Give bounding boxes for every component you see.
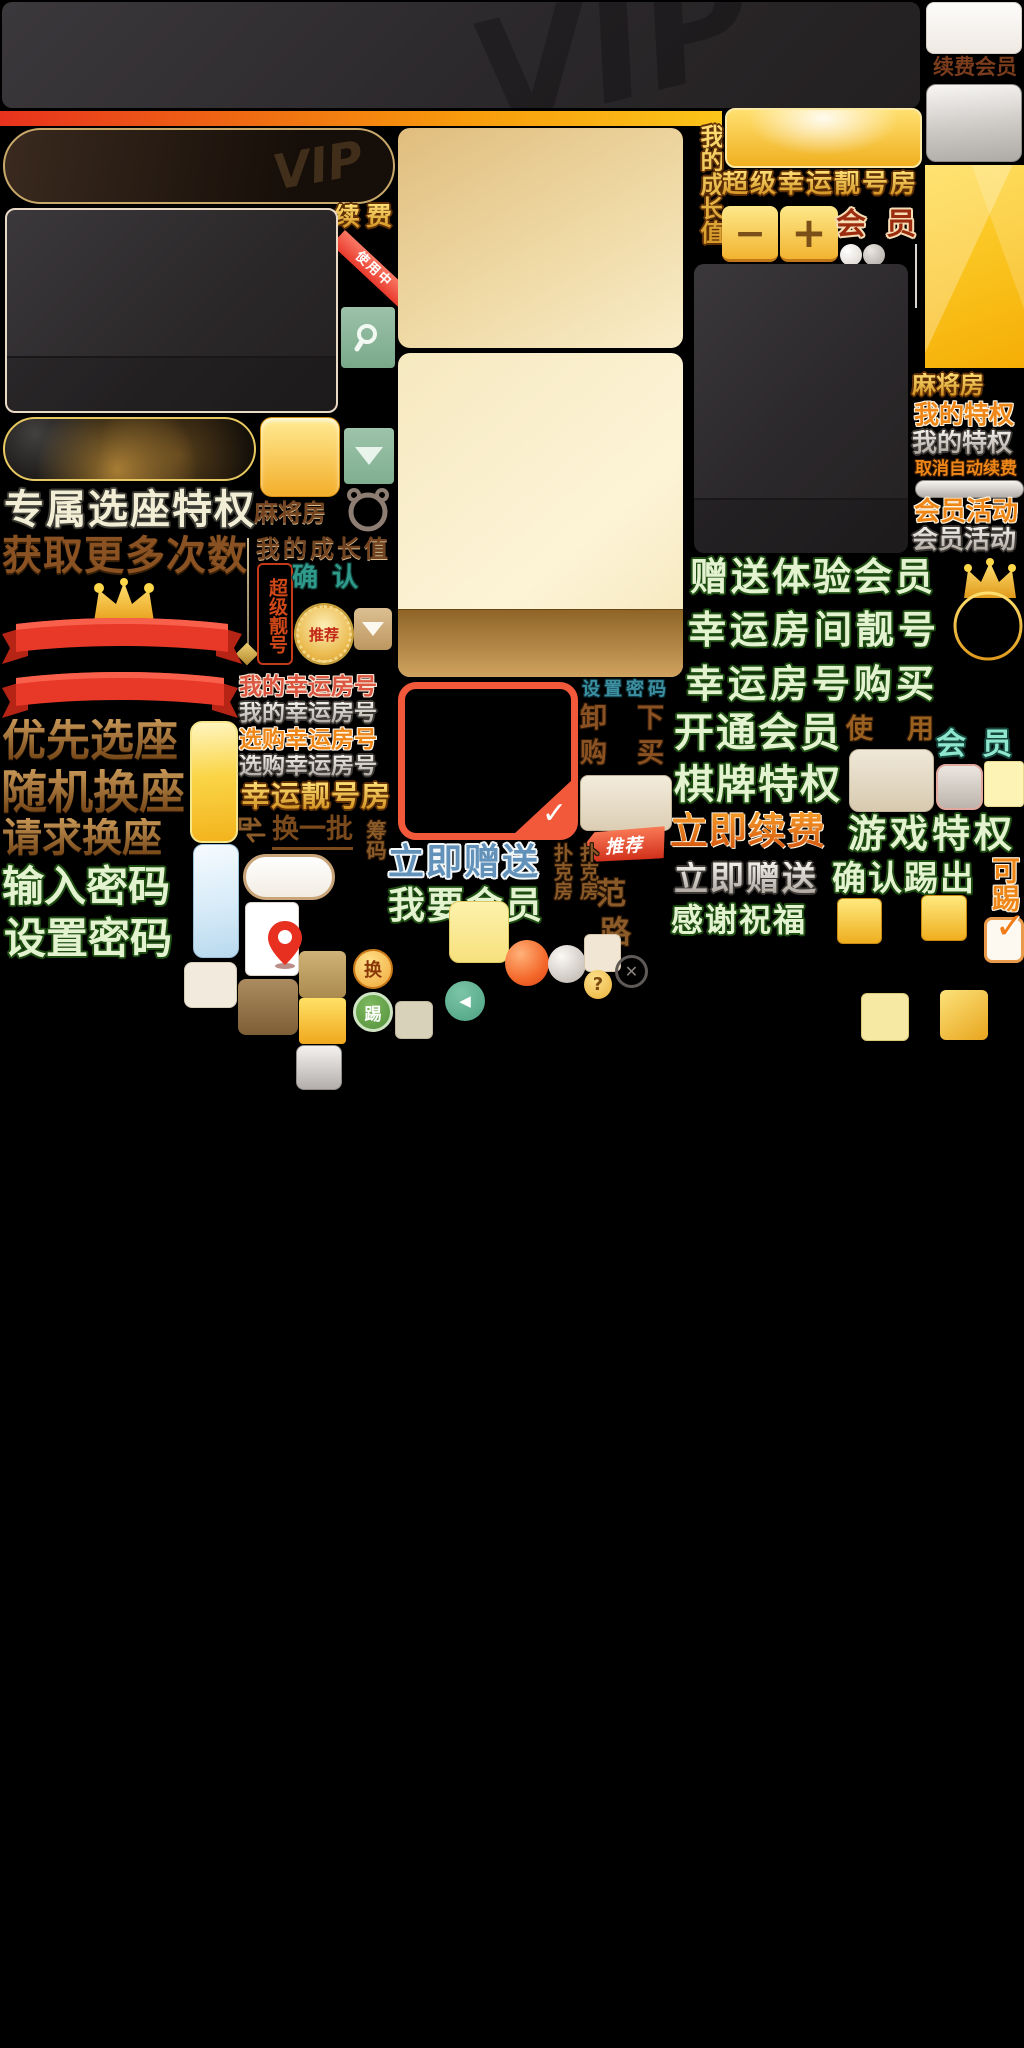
white-ball[interactable] [840, 244, 862, 266]
gold-shiny-button[interactable] [725, 108, 922, 168]
gray-ball[interactable] [548, 945, 586, 983]
chevron-down-icon [355, 447, 383, 465]
beige-square-left[interactable] [184, 962, 237, 1008]
brown-square[interactable] [238, 979, 298, 1035]
swap-arrows-icon[interactable] [238, 815, 270, 845]
kick-checkbox[interactable]: ✓ [984, 917, 1024, 963]
get-more-label: 获取更多次数 [2, 536, 248, 576]
my-lucky-red-label: 我的幸运房号 [239, 676, 377, 699]
plus-icon: + [791, 208, 826, 257]
beige-button-2[interactable] [849, 749, 934, 812]
question-icon: ? [593, 974, 603, 995]
confirm-label[interactable]: 确认 [292, 565, 372, 591]
ribbon-banner-1 [2, 616, 242, 670]
exclusive-seat-label: 专属选座特权 [4, 490, 256, 530]
renew-member-label: 续费会员 [926, 57, 1024, 78]
ring-icon [955, 593, 1021, 659]
orange-ball[interactable] [505, 940, 549, 986]
chevron-down-icon [362, 622, 384, 636]
gold-vertical-button[interactable] [190, 721, 238, 843]
renew-gold-label[interactable]: 续费 [334, 204, 398, 230]
super-number-stamp: 超级靓号 [257, 563, 293, 665]
yellow-facet-panel [925, 165, 1024, 368]
crown-ring-emblem [950, 558, 1024, 662]
thin-vline [915, 244, 917, 308]
request-swap-label[interactable]: 请求换座 [2, 818, 162, 858]
blue-vertical-button[interactable] [193, 844, 239, 958]
kickable-vertical-label: 可踢 [990, 856, 1018, 912]
mahjong-room-left-label: 麻将房 [254, 501, 326, 525]
silver-button[interactable] [926, 84, 1022, 162]
board-privilege-label: 棋牌特权 [674, 765, 842, 805]
khaki-square[interactable] [299, 951, 346, 998]
my-growth-label: 我的成长值 [256, 537, 391, 561]
growth-vertical-gold: 我的成长值 [688, 124, 722, 266]
lucky-room-number-label: 幸运房间靓号 [688, 611, 940, 649]
change-batch-label[interactable]: 换一批 [272, 816, 353, 850]
priority-seat-label[interactable]: 优先选座 [2, 719, 178, 763]
member-teal-label: 会员 [936, 730, 1024, 760]
buy-lucky-silver-label: 选购幸运房号 [239, 755, 377, 778]
silver-square-pink[interactable] [936, 764, 983, 810]
open-member-label[interactable]: 开通会员 [674, 713, 842, 753]
gold-square-a[interactable] [837, 898, 882, 944]
left-dark-card [5, 208, 338, 413]
set-password-small-label: 设置密码 [582, 681, 670, 699]
recommend-medal: 推荐 [296, 605, 352, 663]
tan-panel-2 [398, 353, 683, 677]
pale-yellow-square-br[interactable] [861, 993, 909, 1041]
beige-square-small[interactable] [395, 1001, 433, 1039]
beige-button-1[interactable] [580, 775, 672, 831]
poker-room-col-1: 扑克房 [552, 843, 571, 900]
sprite-atlas: VIP 续费会员 VIP 续费 使用中 麻将房 我的成长值 超级靓号 确认 推荐 [0, 0, 1024, 2048]
teal-dropdown-button[interactable] [344, 428, 394, 484]
gold-square-br[interactable] [940, 990, 988, 1040]
set-password-label: 设置密码 [4, 918, 172, 960]
vip-watermark: VIP [455, 2, 771, 108]
renew-member-button[interactable] [926, 2, 1022, 54]
mahjong-room-right-label: 麻将房 [912, 373, 984, 397]
kick-glyph: 踢 [365, 1000, 382, 1025]
left-arrow-icon: ◀ [459, 992, 471, 1010]
my-privilege-orange: 我的特权 [914, 402, 1014, 427]
yellow-square-button[interactable] [260, 417, 340, 497]
confirm-kick-label[interactable]: 确认踢出 [832, 862, 976, 896]
gold-square-bright[interactable] [299, 998, 346, 1044]
back-circle-button[interactable]: ◀ [445, 981, 485, 1021]
vip-pill[interactable]: VIP [3, 128, 395, 204]
minus-icon: − [734, 211, 766, 255]
member-activity-silver: 会员活动 [912, 527, 1016, 553]
gold-square-b[interactable] [921, 895, 967, 941]
tan-dropdown-button[interactable] [354, 608, 392, 650]
check-icon: ✓ [995, 906, 1024, 947]
gift-now-gray-label[interactable]: 立即赠送 [674, 862, 818, 896]
vip-pill-watermark: VIP [269, 131, 368, 202]
super-lucky-room-title: 超级幸运靓号房 [722, 171, 918, 197]
question-circle[interactable]: ? [584, 970, 612, 999]
bear-ring-icon [342, 486, 394, 532]
plus-button[interactable]: + [780, 206, 838, 262]
sparkle-pill[interactable] [3, 417, 256, 481]
random-swap-label[interactable]: 随机换座 [1, 769, 185, 815]
enter-password-label: 输入密码 [2, 866, 170, 908]
lucky-number-purchase-label: 幸运房号购买 [686, 665, 938, 703]
kick-circle-button[interactable]: 踢 [353, 992, 393, 1032]
search-button[interactable] [341, 307, 395, 368]
minus-button[interactable]: − [722, 206, 778, 262]
member-label-red: 会员 [836, 210, 936, 240]
gift-trial-label: 赠送体验会员 [690, 558, 936, 596]
thanks-label: 感谢祝福 [671, 904, 807, 936]
right-dark-card-footer [694, 498, 908, 553]
left-dark-card-footer [7, 356, 336, 411]
gray-ball-small[interactable] [863, 244, 885, 266]
chips-vertical-label: 筹码 [365, 820, 385, 860]
close-x-circle[interactable]: ✕ [615, 955, 648, 988]
tan-panel-1 [398, 128, 683, 348]
small-silver-pill[interactable] [915, 480, 1024, 498]
cancel-auto-renew-label[interactable]: 取消自动续费 [915, 461, 1017, 478]
silver-square-bottom[interactable] [296, 1045, 342, 1090]
char-fan: 范 [596, 880, 626, 910]
right-dark-card [694, 264, 908, 553]
poker-room-col-2: 扑克房 [578, 843, 597, 900]
frame-check-icon: ✓ [542, 796, 567, 831]
tan-panel-2-footer [398, 609, 683, 677]
white-pill-button[interactable] [243, 854, 335, 900]
lucky-number-room-label: 幸运靓号房 [241, 782, 391, 811]
my-lucky-silver-label: 我的幸运房号 [239, 702, 377, 725]
search-icon [353, 322, 383, 354]
top-dark-panel: VIP [2, 2, 920, 108]
close-icon: ✕ [625, 962, 638, 981]
renew-now-label[interactable]: 立即续费 [670, 812, 826, 850]
swap-circle-button[interactable]: 换 [353, 949, 393, 989]
game-privilege-label: 游戏特权 [848, 815, 1016, 853]
gift-now-blue-label[interactable]: 立即赠送 [388, 845, 540, 881]
swap-glyph: 换 [364, 956, 382, 982]
orange-check-frame[interactable]: ✓ [398, 682, 578, 840]
gradient-bar [0, 111, 722, 126]
buy-lucky-orange-label: 选购幸运房号 [239, 729, 377, 752]
pale-yellow-big-square[interactable] [449, 901, 509, 963]
my-privilege-silver: 我的特权 [912, 430, 1012, 455]
pale-yellow-square-1[interactable] [984, 761, 1024, 807]
member-activity-orange: 会员活动 [914, 499, 1018, 525]
